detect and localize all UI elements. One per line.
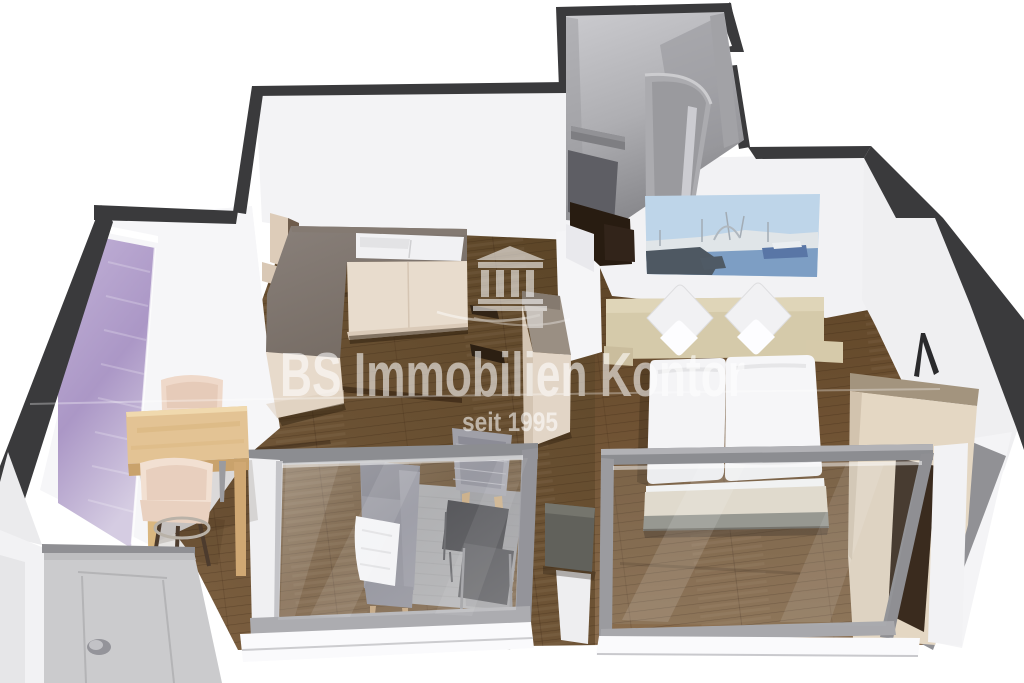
svg-text:BS Immobilien Kontor: BS Immobilien Kontor xyxy=(280,341,745,410)
svg-text:seit 1995: seit 1995 xyxy=(462,407,558,437)
